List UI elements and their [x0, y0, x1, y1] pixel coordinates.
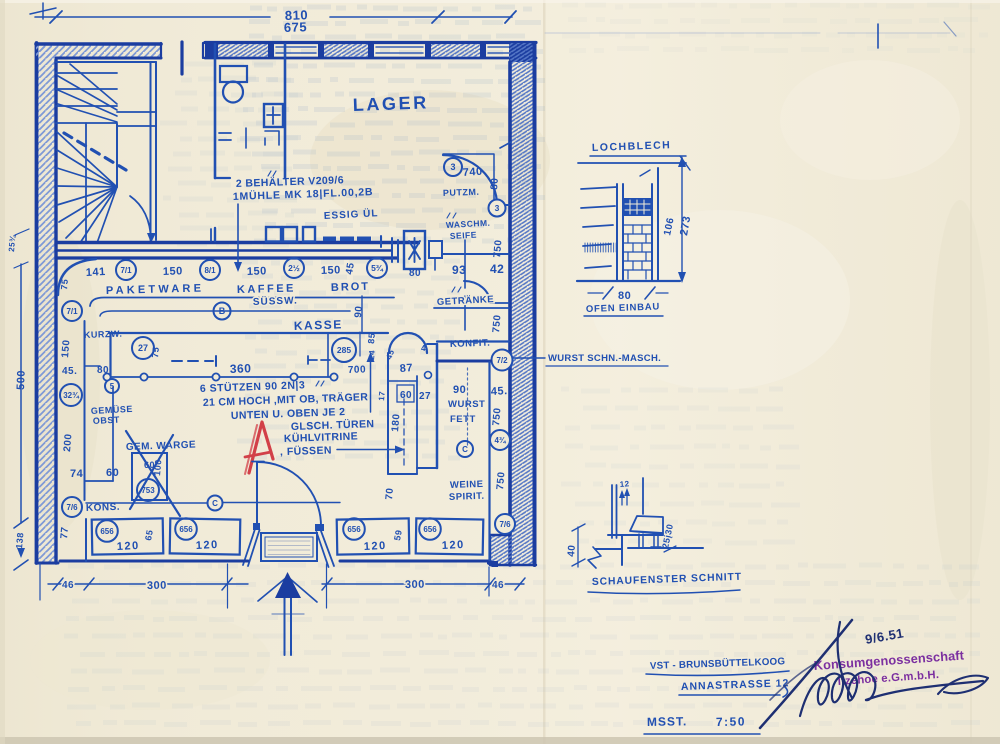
svg-text:OBST: OBST	[93, 415, 121, 426]
svg-text:675: 675	[284, 19, 308, 35]
svg-text:70: 70	[384, 487, 396, 500]
svg-text:KONFIT.: KONFIT.	[450, 338, 491, 350]
svg-text:7/2: 7/2	[496, 356, 508, 365]
svg-text:90: 90	[453, 384, 466, 396]
svg-text:7/6: 7/6	[499, 520, 511, 529]
svg-text:80: 80	[489, 177, 501, 190]
svg-text:B: B	[219, 306, 226, 316]
svg-text:740: 740	[462, 166, 483, 179]
svg-text:180: 180	[390, 413, 403, 432]
svg-text:85: 85	[366, 332, 377, 344]
svg-text:45.: 45.	[491, 385, 508, 398]
svg-text:FÜSSEN: FÜSSEN	[287, 443, 332, 458]
svg-text:45: 45	[344, 262, 357, 276]
svg-text:750: 750	[491, 314, 504, 333]
svg-text:WURST SCHN.-MASCH.: WURST SCHN.-MASCH.	[548, 353, 661, 364]
svg-text:150: 150	[321, 264, 341, 277]
svg-text:750: 750	[491, 407, 504, 426]
svg-text:656: 656	[347, 525, 361, 534]
svg-text:42: 42	[490, 262, 504, 276]
svg-text:60: 60	[400, 390, 412, 401]
svg-text:80: 80	[409, 268, 421, 279]
svg-text:90: 90	[353, 305, 365, 318]
svg-text:120: 120	[117, 540, 140, 553]
svg-text:750: 750	[492, 239, 505, 258]
svg-text:17: 17	[377, 390, 387, 401]
svg-text:MSST.: MSST.	[647, 714, 688, 729]
svg-text:77: 77	[59, 526, 71, 539]
svg-text:SEIFE: SEIFE	[450, 230, 478, 241]
svg-text:59: 59	[392, 529, 404, 542]
svg-text:27: 27	[419, 391, 431, 402]
svg-text:150: 150	[247, 265, 267, 278]
svg-text:32¾: 32¾	[63, 391, 80, 400]
svg-text:3: 3	[450, 162, 455, 172]
svg-text:5¾: 5¾	[371, 263, 384, 273]
svg-text:4¾: 4¾	[494, 436, 506, 445]
svg-text:360: 360	[230, 361, 252, 376]
svg-text:120: 120	[442, 539, 465, 552]
svg-text:12: 12	[619, 479, 630, 489]
svg-text:WURST: WURST	[448, 399, 485, 410]
svg-text:46: 46	[492, 580, 504, 591]
svg-text:4: 4	[421, 344, 426, 353]
svg-text:120: 120	[196, 539, 219, 552]
svg-text:300: 300	[147, 580, 167, 592]
svg-text:KASSE: KASSE	[294, 317, 343, 333]
svg-text:150: 150	[60, 339, 73, 358]
svg-text:87: 87	[399, 362, 413, 375]
svg-text:C: C	[462, 445, 468, 454]
svg-text:200: 200	[62, 433, 75, 452]
svg-text:46: 46	[62, 580, 74, 591]
svg-text:40: 40	[566, 544, 578, 557]
svg-text:300: 300	[405, 579, 425, 591]
svg-text:,: ,	[280, 446, 283, 458]
svg-text:PAKETWARE: PAKETWARE	[106, 282, 205, 297]
svg-text:7:50: 7:50	[716, 714, 746, 729]
svg-text:FETT: FETT	[450, 414, 476, 425]
svg-text:7/1: 7/1	[120, 266, 132, 275]
svg-text:C: C	[212, 499, 218, 508]
svg-text:750: 750	[495, 471, 508, 490]
svg-text:KÜHLVITRINE: KÜHLVITRINE	[284, 429, 359, 445]
svg-text:KAFFEE: KAFFEE	[237, 282, 296, 296]
svg-text:120: 120	[364, 540, 387, 553]
svg-text:80: 80	[618, 290, 631, 302]
svg-text:75: 75	[150, 346, 161, 358]
svg-text:7/1: 7/1	[66, 307, 78, 316]
svg-text:BROT: BROT	[331, 281, 371, 294]
svg-text:656: 656	[100, 527, 114, 536]
svg-text:45.: 45.	[62, 366, 77, 377]
svg-text:2½: 2½	[288, 263, 300, 273]
svg-text:500: 500	[15, 370, 28, 390]
svg-text:65: 65	[143, 529, 155, 542]
svg-text:8/1: 8/1	[204, 266, 216, 275]
svg-text:WEINE: WEINE	[450, 479, 484, 491]
svg-text:PUTZM.: PUTZM.	[443, 187, 480, 198]
svg-text:138: 138	[14, 532, 25, 549]
svg-text:285: 285	[337, 345, 351, 355]
svg-text:27: 27	[138, 343, 148, 353]
svg-text:700: 700	[348, 364, 367, 376]
svg-text:SPIRIT.: SPIRIT.	[449, 491, 485, 503]
svg-text:656: 656	[179, 525, 193, 534]
svg-text:3: 3	[495, 203, 500, 213]
svg-text:7/6: 7/6	[66, 503, 78, 512]
svg-text:656: 656	[423, 525, 437, 534]
svg-text:141: 141	[86, 266, 106, 279]
svg-text:150: 150	[163, 265, 183, 278]
svg-text:LAGER: LAGER	[352, 92, 429, 115]
svg-text:74: 74	[70, 468, 84, 480]
svg-text:KURZW.: KURZW.	[84, 329, 123, 340]
svg-text:25¾: 25¾	[7, 234, 18, 253]
